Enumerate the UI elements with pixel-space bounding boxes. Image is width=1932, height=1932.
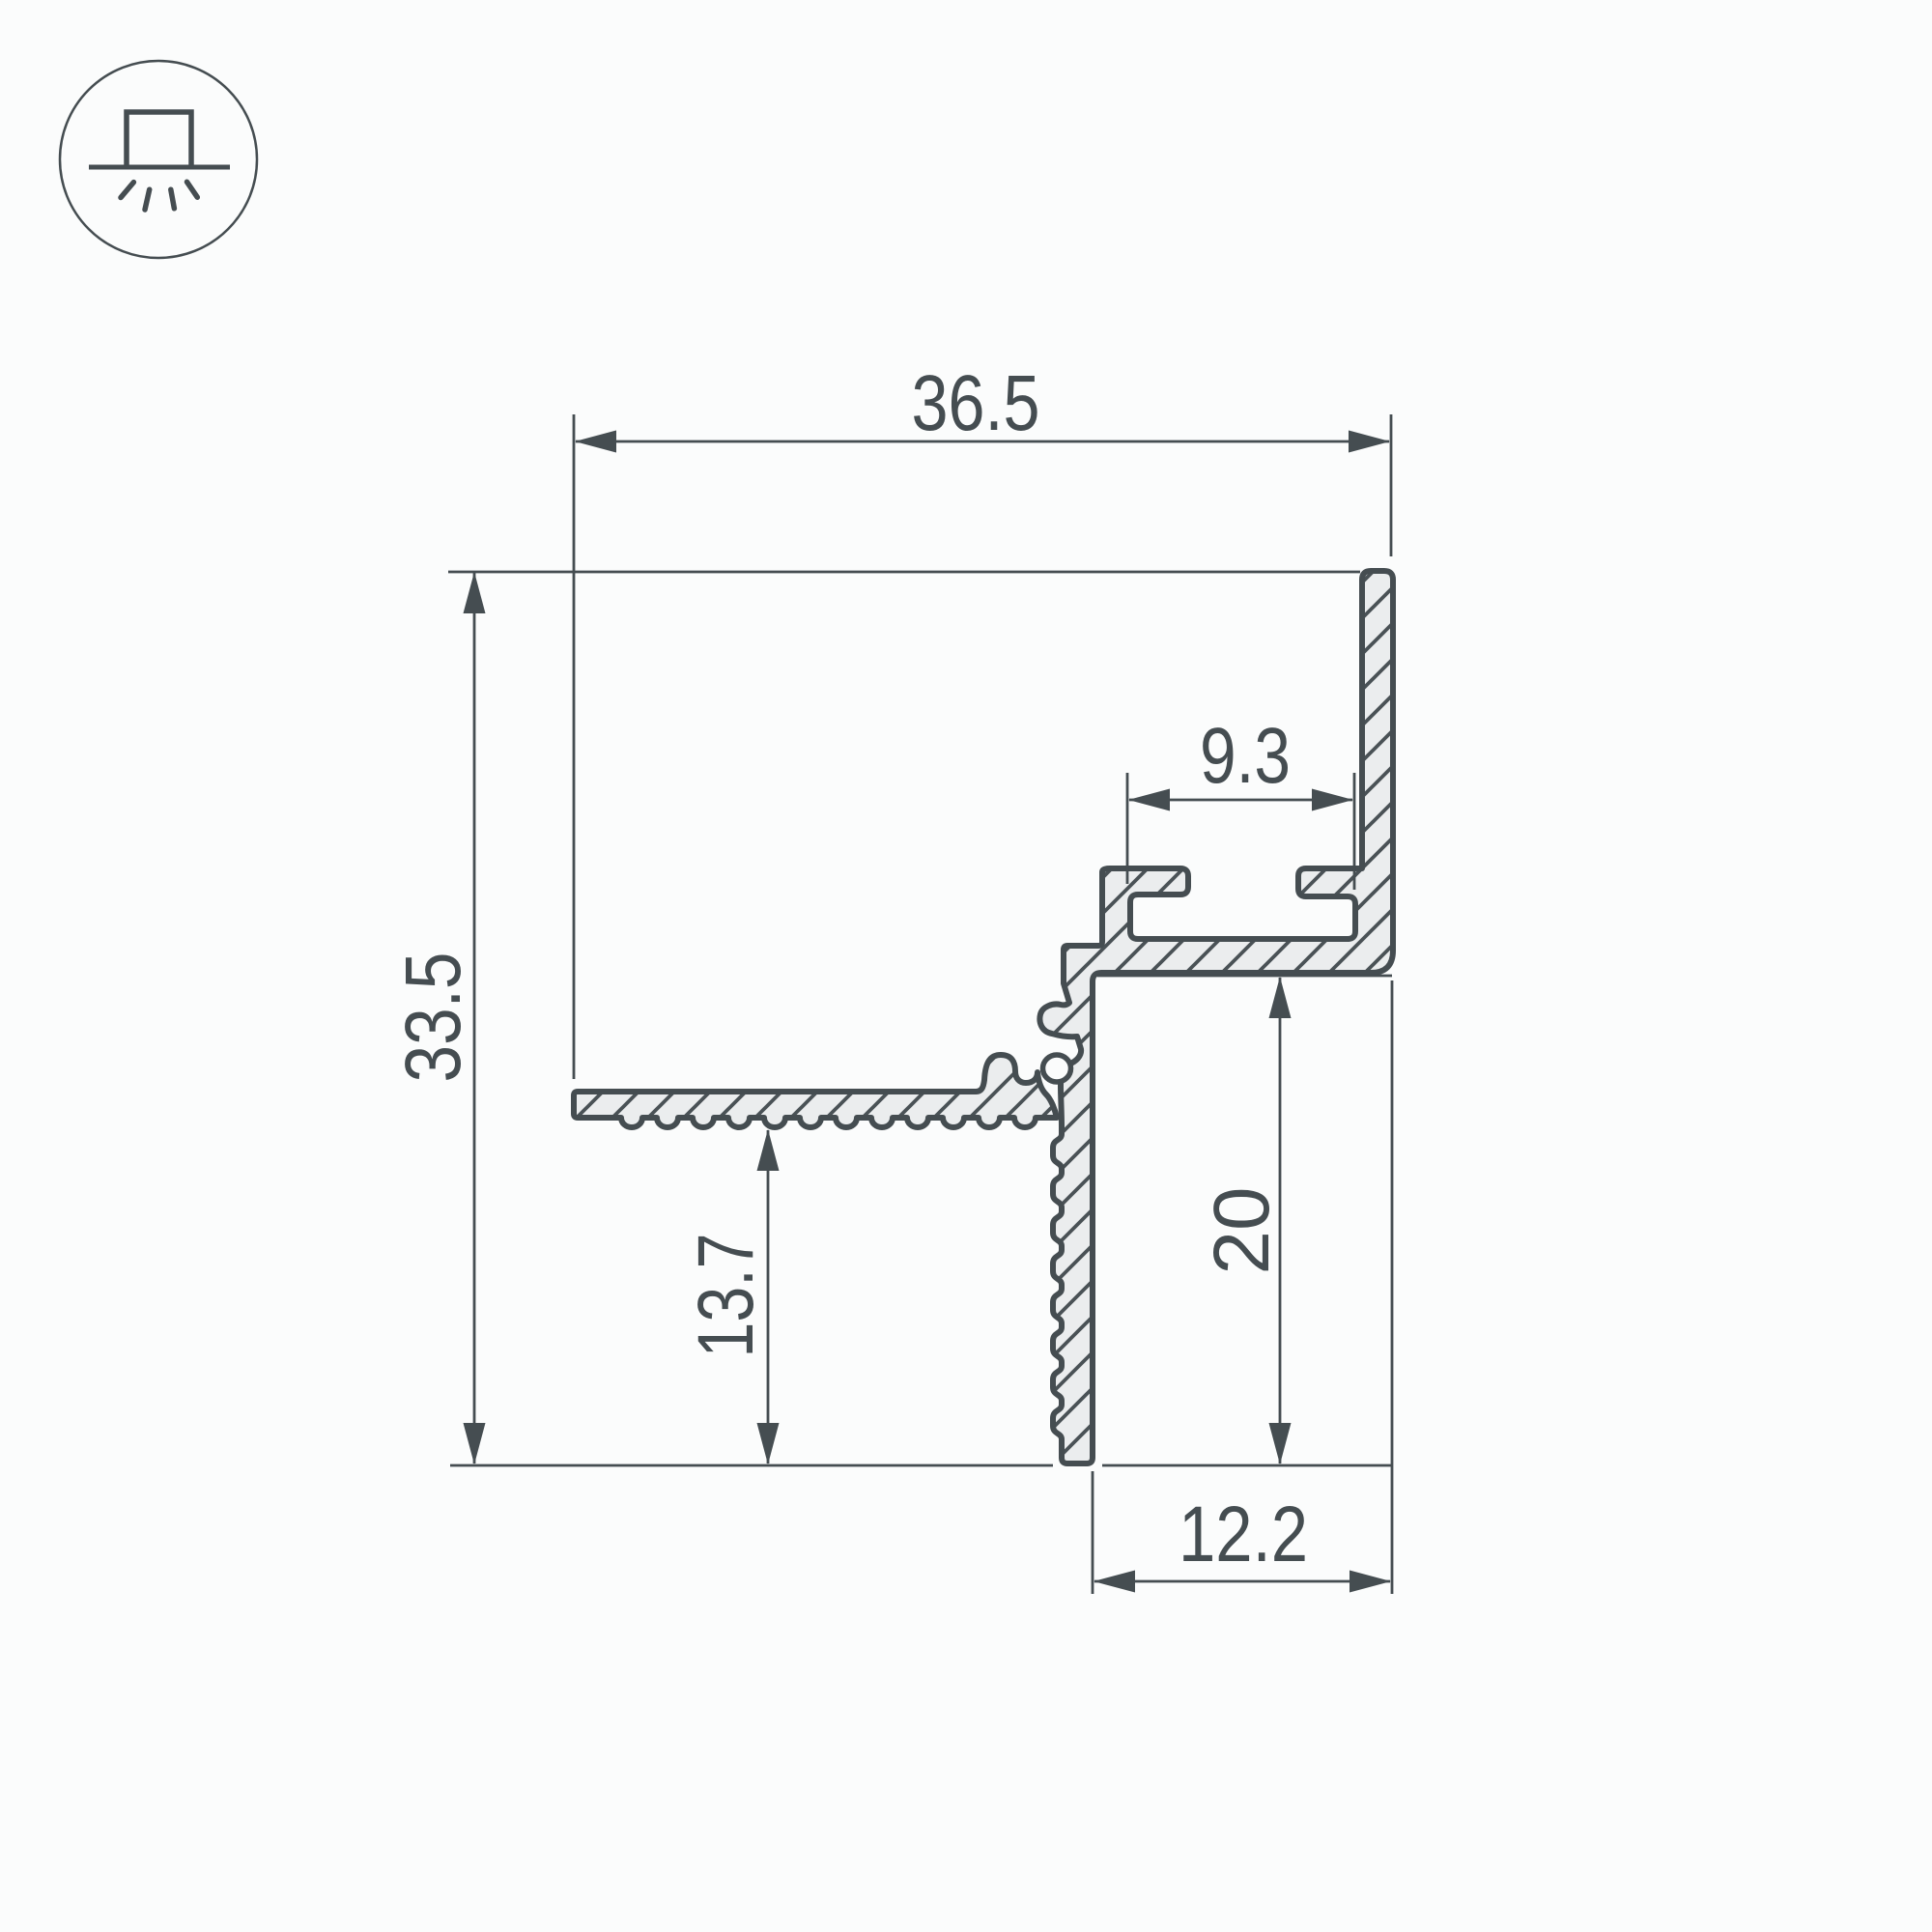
svg-text:12.2: 12.2 — [1179, 1491, 1308, 1578]
svg-text:13.7: 13.7 — [682, 1234, 770, 1358]
svg-text:20: 20 — [1198, 1187, 1286, 1275]
svg-text:33.5: 33.5 — [389, 952, 477, 1083]
svg-text:9.3: 9.3 — [1200, 712, 1291, 800]
svg-text:36.5: 36.5 — [912, 359, 1040, 447]
